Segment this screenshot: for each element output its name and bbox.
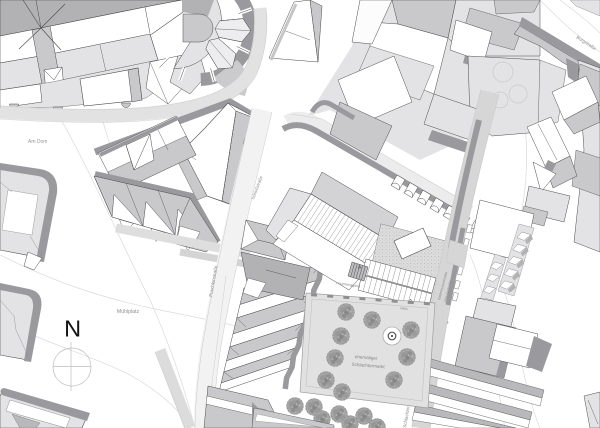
svg-text:Am Dom: Am Dom — [28, 139, 47, 145]
svg-text:Mühlplatz: Mühlplatz — [117, 309, 140, 315]
svg-text:N: N — [64, 316, 81, 342]
